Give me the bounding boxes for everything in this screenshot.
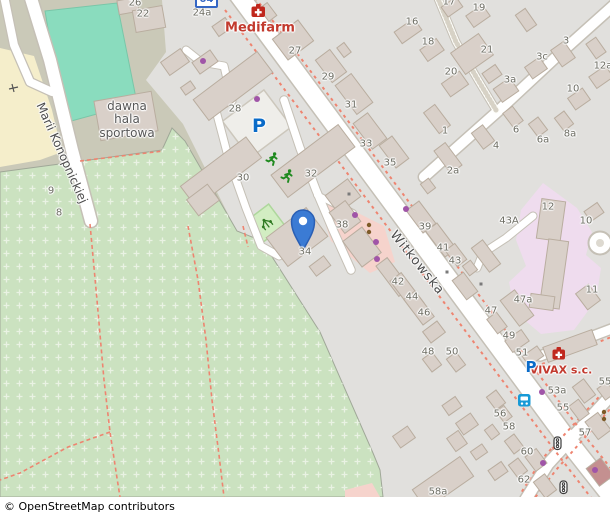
runner-icon xyxy=(266,152,276,165)
map-canvas[interactable]: 262224a272931333528303234383941434244464… xyxy=(0,0,610,497)
attribution-bar: © OpenStreetMap contributors xyxy=(0,497,610,515)
traffic-light-icon xyxy=(560,481,567,494)
traffic-light-icon xyxy=(554,437,561,450)
osm-map-view: 262224a272931333528303234383941434244464… xyxy=(0,0,610,515)
attribution-link[interactable]: © OpenStreetMap contributors xyxy=(4,500,175,513)
bus-stop-icon xyxy=(518,394,531,407)
